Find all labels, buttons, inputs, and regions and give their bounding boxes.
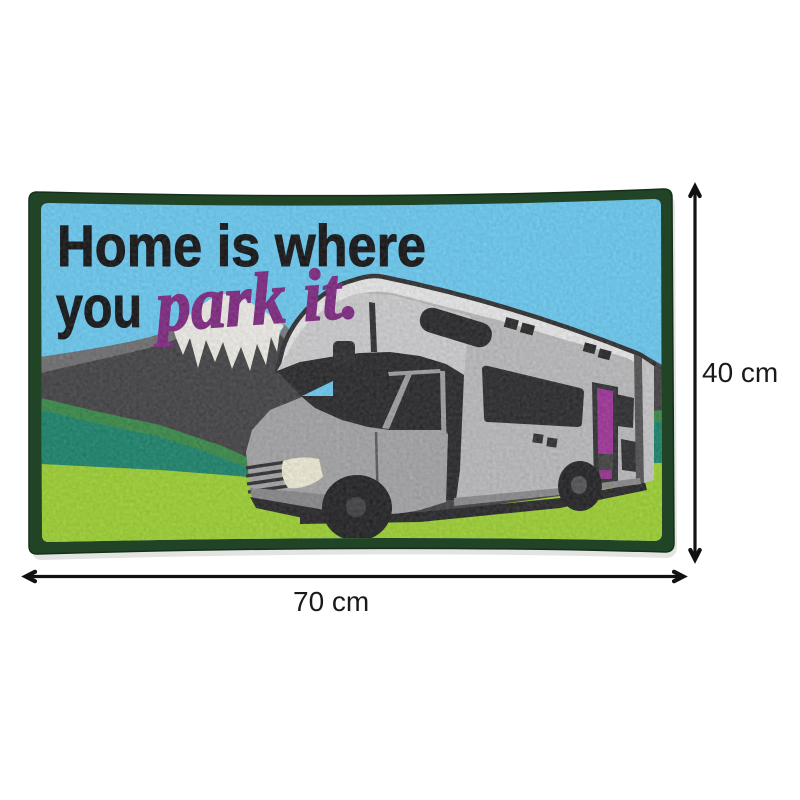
svg-text:40 cm: 40 cm [702,357,778,388]
svg-text:70 cm: 70 cm [293,586,369,617]
